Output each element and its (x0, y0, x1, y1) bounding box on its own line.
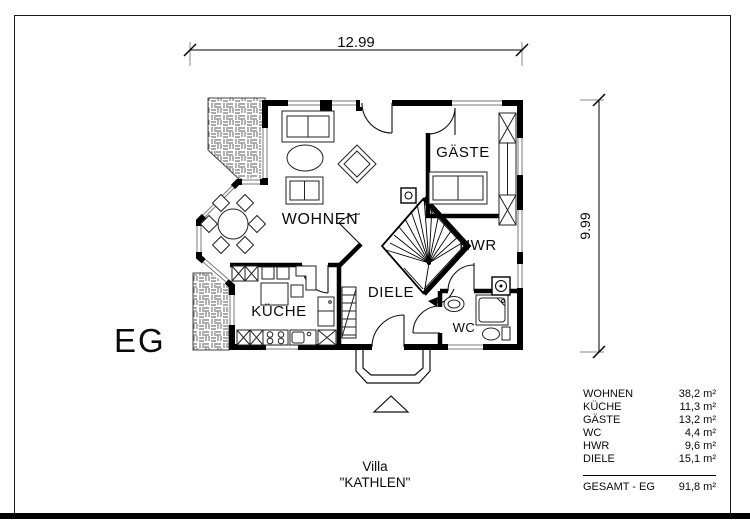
sheet-bottom-edge (0, 513, 750, 519)
area-table: WOHNEN 38,2 m² KÜCHE 11,3 m² GÄSTE 13,2 … (583, 388, 716, 494)
title-line-2: "KATHLEN" (290, 475, 460, 491)
total-value: 91,8 m² (679, 481, 716, 494)
room-label-wohnen: WOHNEN (282, 211, 358, 228)
table-row: KÜCHE 11,3 m² (583, 401, 716, 414)
room-area: 13,2 m² (679, 414, 716, 427)
table-total-row: GESAMT - EG 91,8 m² (583, 481, 716, 494)
room-name: GÄSTE (583, 414, 620, 427)
room-label-wc: WC (453, 320, 476, 335)
total-label: GESAMT - EG (583, 481, 655, 494)
table-row: DIELE 15,1 m² (583, 453, 716, 466)
room-label-hwr: HWR (459, 237, 497, 254)
dimension-width-label: 12.99 (337, 34, 375, 51)
entrance-porch (356, 350, 430, 383)
dimension-height: 9.99 (577, 94, 605, 358)
room-area: 4,4 m² (685, 427, 716, 440)
room-name: WOHNEN (583, 388, 633, 401)
table-row: WOHNEN 38,2 m² (583, 388, 716, 401)
room-name: KÜCHE (583, 401, 622, 414)
room-area: 15,1 m² (679, 453, 716, 466)
table-total-divider (583, 475, 716, 476)
room-name: DIELE (583, 453, 615, 466)
table-row: HWR 9,6 m² (583, 440, 716, 453)
terrace-bottom-left (193, 273, 229, 350)
room-label-diele: DIELE (368, 284, 414, 301)
table-row: GÄSTE 13,2 m² (583, 414, 716, 427)
room-name: WC (583, 427, 601, 440)
room-label-gaeste: GÄSTE (436, 144, 490, 161)
room-label-kueche: KÜCHE (251, 302, 307, 320)
room-area: 38,2 m² (679, 388, 716, 401)
room-area: 9,6 m² (685, 440, 716, 453)
dimension-width: 12.99 (184, 34, 528, 66)
room-name: HWR (583, 440, 609, 453)
entrance-marker-triangle (374, 396, 408, 412)
room-area: 11,3 m² (680, 401, 716, 414)
hwr-boiler (492, 277, 510, 295)
diele-furniture (342, 287, 356, 338)
table-row: WC 4,4 m² (583, 427, 716, 440)
floor-label: EG (114, 322, 166, 360)
title-line-1: Villa (290, 459, 460, 475)
dimension-height-label: 9.99 (577, 212, 593, 239)
floor-plan-page: 12.99 9.99 WOHNEN GÄSTE HWR DIELE KÜCHE … (0, 0, 750, 530)
terrace-top-left (208, 98, 265, 180)
drawing-title: Villa "KATHLEN" (290, 459, 460, 491)
